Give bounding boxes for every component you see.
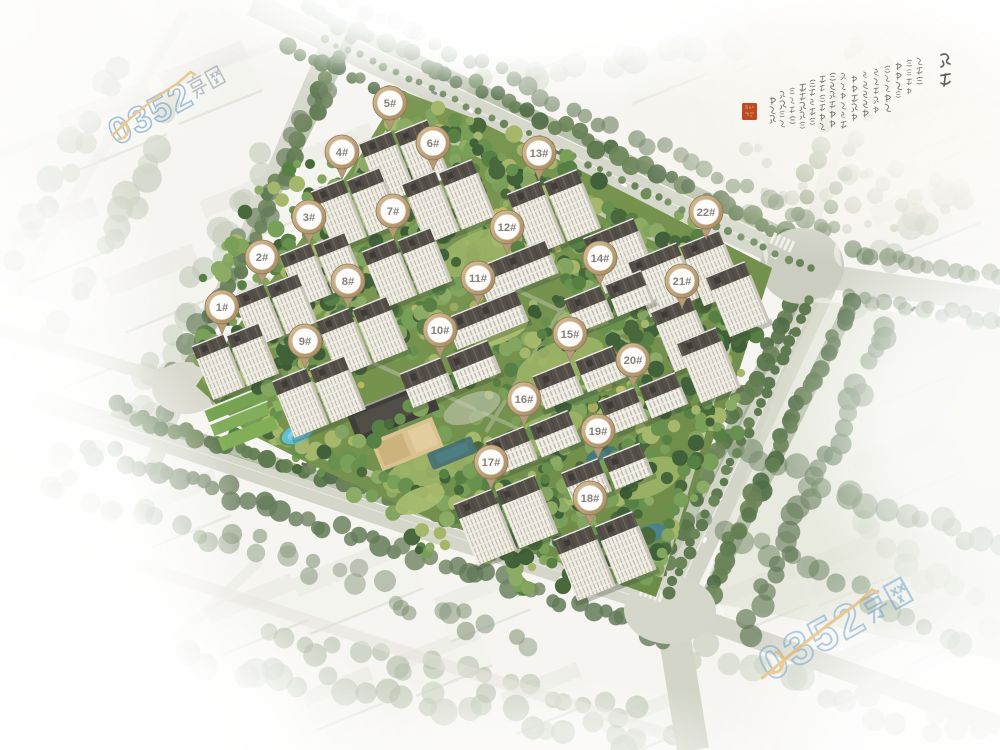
- svg-text:19#: 19#: [589, 426, 608, 438]
- svg-text:18#: 18#: [581, 493, 600, 505]
- svg-text:8#: 8#: [342, 276, 355, 288]
- svg-text:5#: 5#: [384, 98, 397, 110]
- svg-text:6#: 6#: [427, 138, 440, 150]
- svg-text:12#: 12#: [498, 222, 517, 234]
- svg-text:7#: 7#: [387, 206, 400, 218]
- svg-text:22#: 22#: [697, 207, 716, 219]
- svg-text:15#: 15#: [561, 329, 580, 341]
- svg-text:1#: 1#: [216, 302, 229, 314]
- svg-text:13#: 13#: [530, 148, 549, 160]
- svg-text:14#: 14#: [591, 253, 610, 265]
- svg-text:20#: 20#: [624, 355, 643, 367]
- svg-text:2#: 2#: [256, 252, 269, 264]
- svg-text:3#: 3#: [303, 212, 316, 224]
- svg-text:16#: 16#: [515, 394, 534, 406]
- svg-text:10#: 10#: [431, 325, 450, 337]
- svg-text:11#: 11#: [469, 273, 488, 285]
- svg-text:17#: 17#: [482, 457, 501, 469]
- svg-text:9#: 9#: [299, 336, 312, 348]
- svg-text:4#: 4#: [336, 147, 349, 159]
- svg-text:21#: 21#: [673, 276, 692, 288]
